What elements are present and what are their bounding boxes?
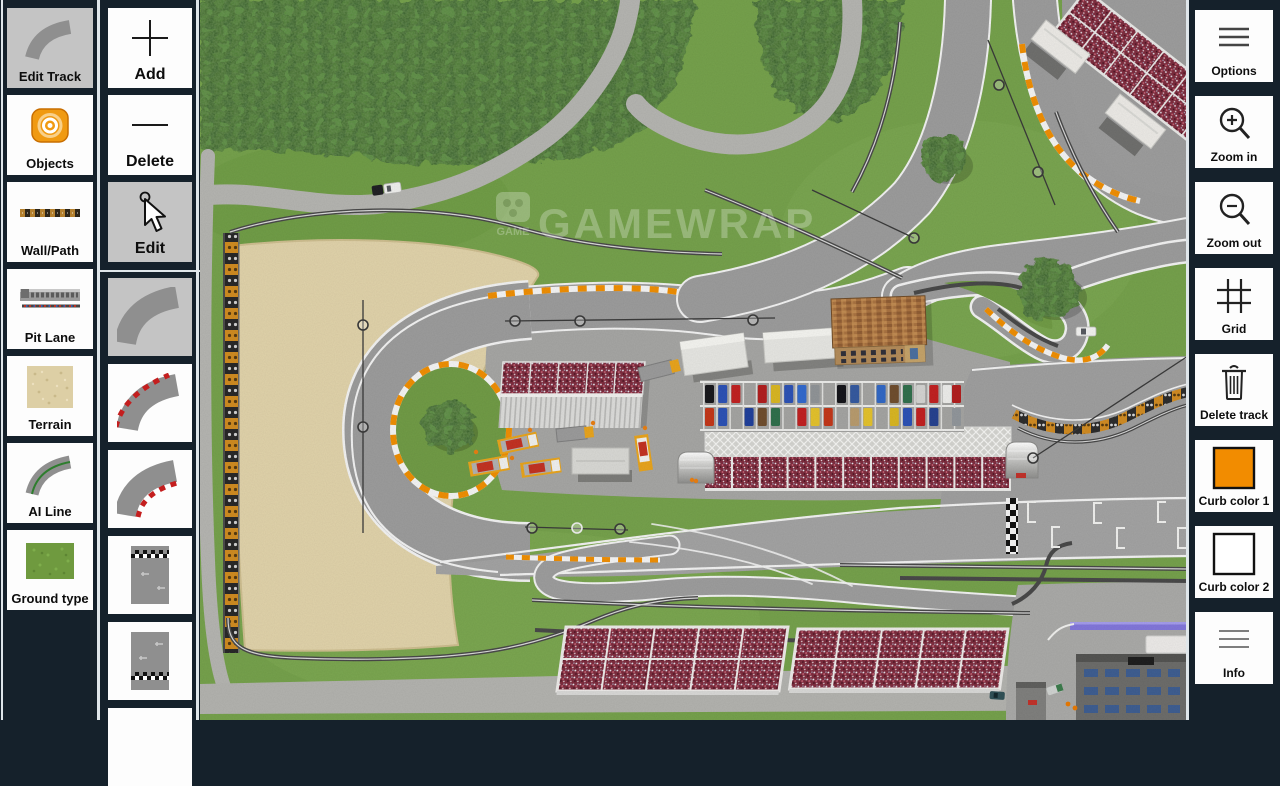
svg-text:GAMEWRAP: GAMEWRAP — [538, 200, 816, 247]
sand-swatch-icon — [7, 356, 93, 418]
curb-color-2-swatch — [1195, 526, 1273, 581]
straight-finish-top-icon — [117, 544, 183, 606]
sidebar-item-wall-path[interactable]: Wall/Path — [7, 182, 93, 262]
straight-finish-bottom-icon — [117, 630, 183, 692]
separator — [1186, 0, 1189, 720]
sidebar-item-terrain[interactable]: Terrain — [7, 356, 93, 436]
delete-button[interactable]: Delete — [108, 95, 192, 175]
cursor-arrow-icon — [108, 182, 192, 241]
sidebar-item-ground-type[interactable]: Ground type — [7, 530, 93, 610]
curve-curb-outer-icon — [117, 373, 183, 433]
edit-sidebar: Add Delete Edit — [100, 0, 200, 720]
pit-building-icon — [7, 269, 93, 331]
piece-straight-finish-top[interactable] — [108, 536, 192, 614]
options-button[interactable]: Options — [1195, 10, 1273, 82]
view-sidebar: Options Zoom in Zoom out — [1188, 0, 1280, 720]
curve-curb-inner-icon — [117, 459, 183, 519]
svg-text:GAME: GAME — [497, 226, 530, 238]
plus-icon — [108, 8, 192, 67]
mode-sidebar: Edit Track Objects — [0, 0, 100, 720]
info-button[interactable]: Info — [1195, 612, 1273, 684]
grid-hash-icon — [1195, 268, 1273, 323]
sidebar-item-ai-line[interactable]: AI Line — [7, 443, 93, 523]
add-button[interactable]: Add — [108, 8, 192, 88]
curb-color-1-button[interactable]: Curb color 1 — [1195, 440, 1273, 512]
piece-curve-curb-outer[interactable] — [108, 364, 192, 442]
thin-lines-icon — [1195, 612, 1273, 667]
separator — [196, 0, 199, 720]
track-map-canvas[interactable]: GAME GAMEWRAP — [200, 0, 1188, 720]
separator — [1, 0, 3, 720]
delete-track-button[interactable]: Delete track — [1195, 354, 1273, 426]
curb-color-1-swatch — [1195, 440, 1273, 495]
edit-button[interactable]: Edit — [108, 182, 192, 262]
menu-lines-icon — [1195, 10, 1273, 65]
piece-curve-plain[interactable] — [108, 278, 192, 356]
zoom-out-button[interactable]: Zoom out — [1195, 182, 1273, 254]
magnifier-minus-icon — [1195, 182, 1273, 237]
tire-wall-strip-icon — [7, 182, 93, 244]
orange-target-icon — [7, 95, 93, 157]
curve-green-line-icon — [7, 443, 93, 505]
curve-piece-icon — [117, 287, 183, 347]
grass-swatch-icon — [7, 530, 93, 592]
sidebar-item-objects[interactable]: Objects — [7, 95, 93, 175]
piece-straight-finish-bottom[interactable] — [108, 622, 192, 700]
sidebar-item-pit-lane[interactable]: Pit Lane — [7, 269, 93, 349]
zoom-in-button[interactable]: Zoom in — [1195, 96, 1273, 168]
palette-separator — [100, 270, 200, 272]
grid-button[interactable]: Grid — [1195, 268, 1273, 340]
curb-color-2-button[interactable]: Curb color 2 — [1195, 526, 1273, 598]
texture-overlay-light — [200, 0, 1188, 720]
piece-curve-curb-inner[interactable] — [108, 450, 192, 528]
magnifier-plus-icon — [1195, 96, 1273, 151]
sidebar-item-edit-track[interactable]: Edit Track — [7, 8, 93, 88]
watermark: GAME GAMEWRAP — [496, 192, 816, 247]
minus-icon — [108, 95, 192, 154]
curved-road-icon — [7, 8, 93, 70]
trash-can-icon — [1195, 354, 1273, 409]
separator — [97, 0, 100, 720]
